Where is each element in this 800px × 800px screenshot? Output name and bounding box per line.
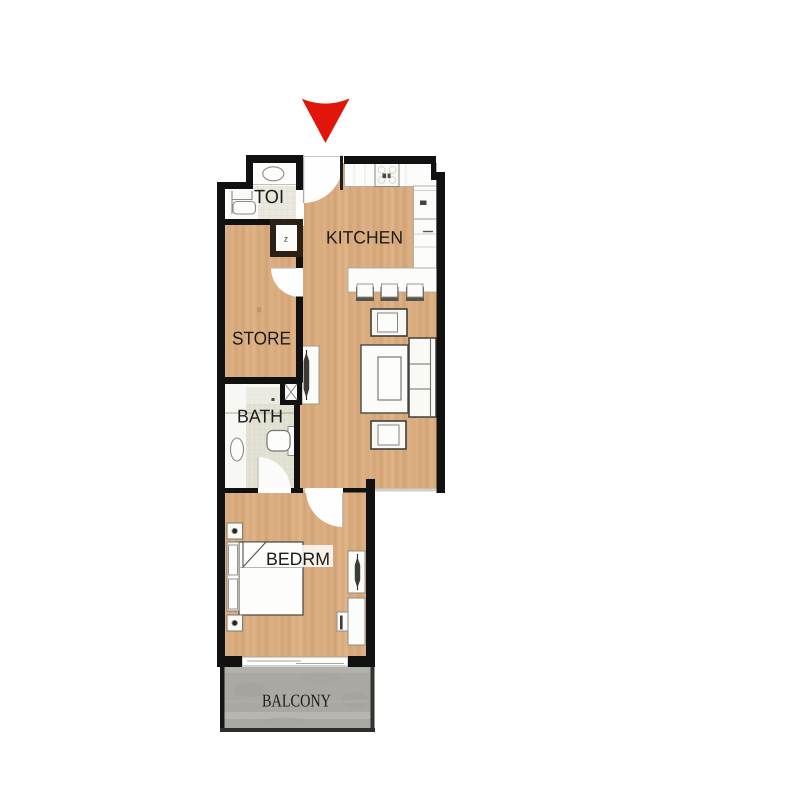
svg-text:BEDRM: BEDRM [266, 549, 330, 569]
svg-text:TOI: TOI [254, 187, 284, 208]
svg-text:KITCHEN: KITCHEN [326, 228, 403, 248]
svg-text:BATH: BATH [237, 406, 283, 427]
svg-text:z: z [284, 235, 288, 244]
svg-text:STORE: STORE [232, 328, 291, 349]
svg-text:BALCONY: BALCONY [262, 691, 331, 711]
